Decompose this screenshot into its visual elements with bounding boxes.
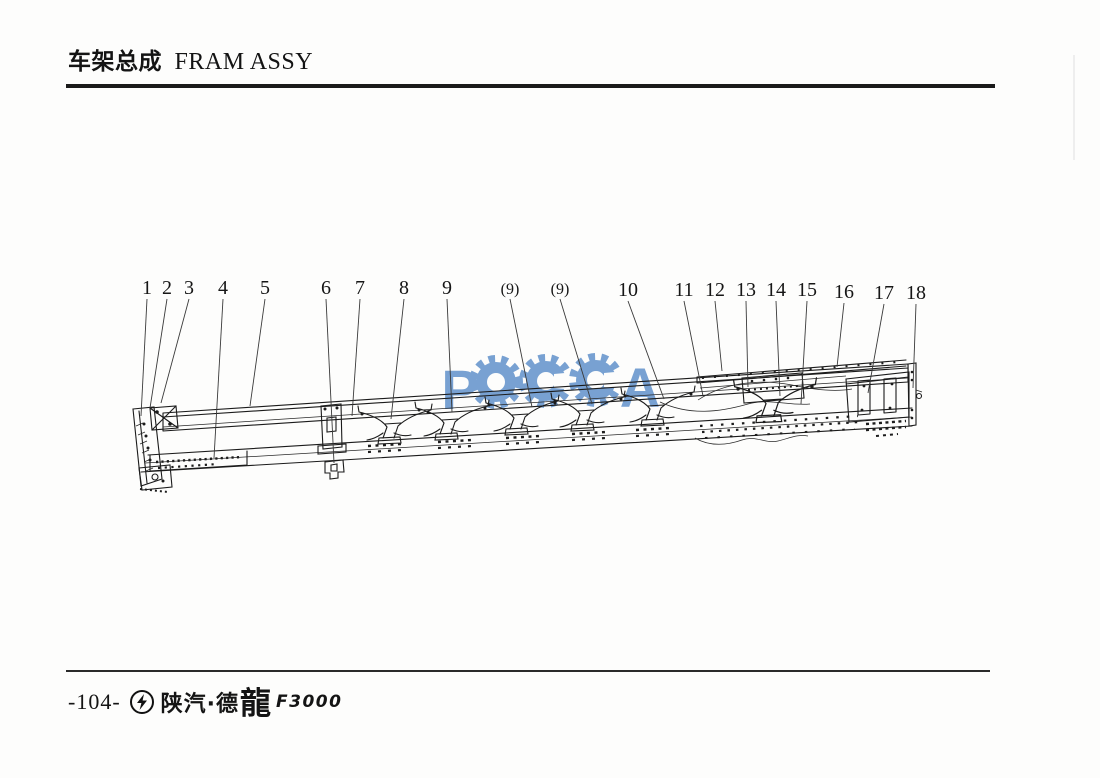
brand-name-chinese: 陕汽·德: [161, 686, 239, 718]
callout-number: 11: [674, 279, 693, 301]
callout-number: 14: [766, 279, 786, 301]
callout-number: 13: [736, 279, 756, 301]
callout-number: 1: [142, 277, 152, 299]
leader-line: [250, 299, 265, 406]
callout-number: 3: [184, 277, 194, 299]
callout-number: 7: [355, 277, 365, 299]
callout-number: 18: [906, 282, 926, 304]
watermark: P A: [441, 356, 660, 421]
callout-number: 15: [797, 279, 817, 301]
callout-number: (9): [501, 281, 520, 298]
brand-model: F3000: [276, 692, 342, 712]
leader-line: [214, 299, 223, 458]
watermark-letter-a: A: [620, 356, 660, 419]
front-crossmember: [133, 406, 178, 492]
page-number: -104-: [68, 689, 121, 715]
callout-number: 17: [874, 282, 894, 304]
gear-icon: [473, 359, 519, 405]
footer-rule: [66, 670, 990, 672]
frame-assembly-diagram: P A: [0, 0, 1100, 778]
shacman-logo-icon: [129, 689, 155, 715]
frame-near-rail: [141, 408, 912, 472]
leader-line: [715, 301, 722, 371]
callout-number: 16: [834, 281, 854, 303]
leader-line: [141, 299, 147, 416]
callout-number: 5: [260, 277, 270, 299]
callout-number: 8: [399, 277, 409, 299]
gear-icon: [523, 358, 576, 404]
callout-number: 6: [321, 277, 331, 299]
callout-number: 10: [618, 279, 638, 301]
leader-line: [837, 303, 844, 367]
callout-number: 4: [218, 277, 228, 299]
gear-icon: [573, 357, 626, 403]
callout-number: 12: [705, 279, 725, 301]
footer: -104- 陕汽·德 龍 F3000: [68, 682, 342, 722]
leader-line: [161, 299, 189, 403]
leader-line: [352, 299, 360, 416]
callout-number: 9: [442, 277, 452, 299]
leader-line: [326, 299, 334, 463]
callout-number: 2: [162, 277, 172, 299]
callout-number: (9): [551, 281, 570, 298]
catalog-page: 车架总成 FRAM ASSY P: [0, 0, 1100, 778]
brand-dragon-character: 龍: [240, 678, 271, 723]
